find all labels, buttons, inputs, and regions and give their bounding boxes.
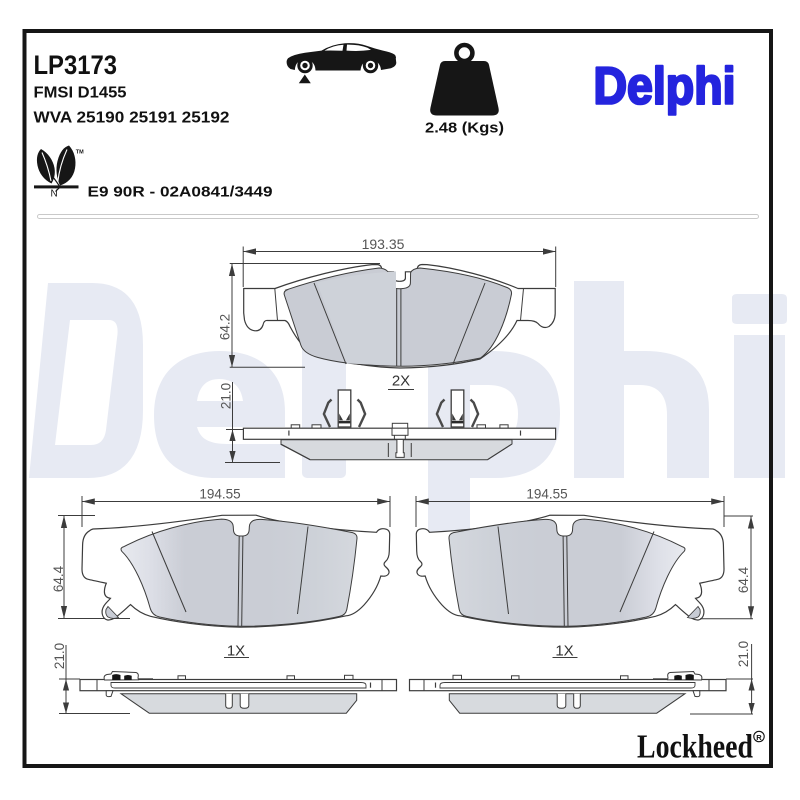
svg-text:TM: TM	[76, 150, 84, 156]
svg-text:193.35: 193.35	[362, 236, 405, 252]
svg-text:2X: 2X	[392, 373, 410, 390]
svg-text:64.4: 64.4	[51, 565, 66, 592]
svg-text:21.0: 21.0	[219, 383, 234, 409]
svg-text:21.0: 21.0	[52, 643, 67, 669]
svg-text:LP3173: LP3173	[34, 50, 118, 80]
svg-text:WVA 25190 25191 25192: WVA 25190 25191 25192	[34, 110, 230, 127]
svg-text:64.2: 64.2	[218, 314, 233, 340]
svg-text:Delphi: Delphi	[594, 58, 736, 116]
svg-text:R: R	[756, 733, 762, 742]
svg-text:194.55: 194.55	[526, 487, 567, 502]
svg-text:1X: 1X	[227, 643, 245, 660]
svg-text:21.0: 21.0	[736, 641, 751, 667]
svg-text:194.55: 194.55	[199, 487, 240, 502]
svg-text:FMSI D1455: FMSI D1455	[34, 85, 127, 102]
svg-text:1X: 1X	[555, 643, 573, 660]
svg-text:2.48 (Kgs): 2.48 (Kgs)	[425, 121, 504, 137]
svg-text:Lockheed: Lockheed	[637, 729, 753, 766]
svg-text:N: N	[51, 189, 58, 200]
svg-text:64.4: 64.4	[736, 566, 751, 593]
svg-text:E9 90R - 02A0841/3449: E9 90R - 02A0841/3449	[88, 184, 273, 201]
